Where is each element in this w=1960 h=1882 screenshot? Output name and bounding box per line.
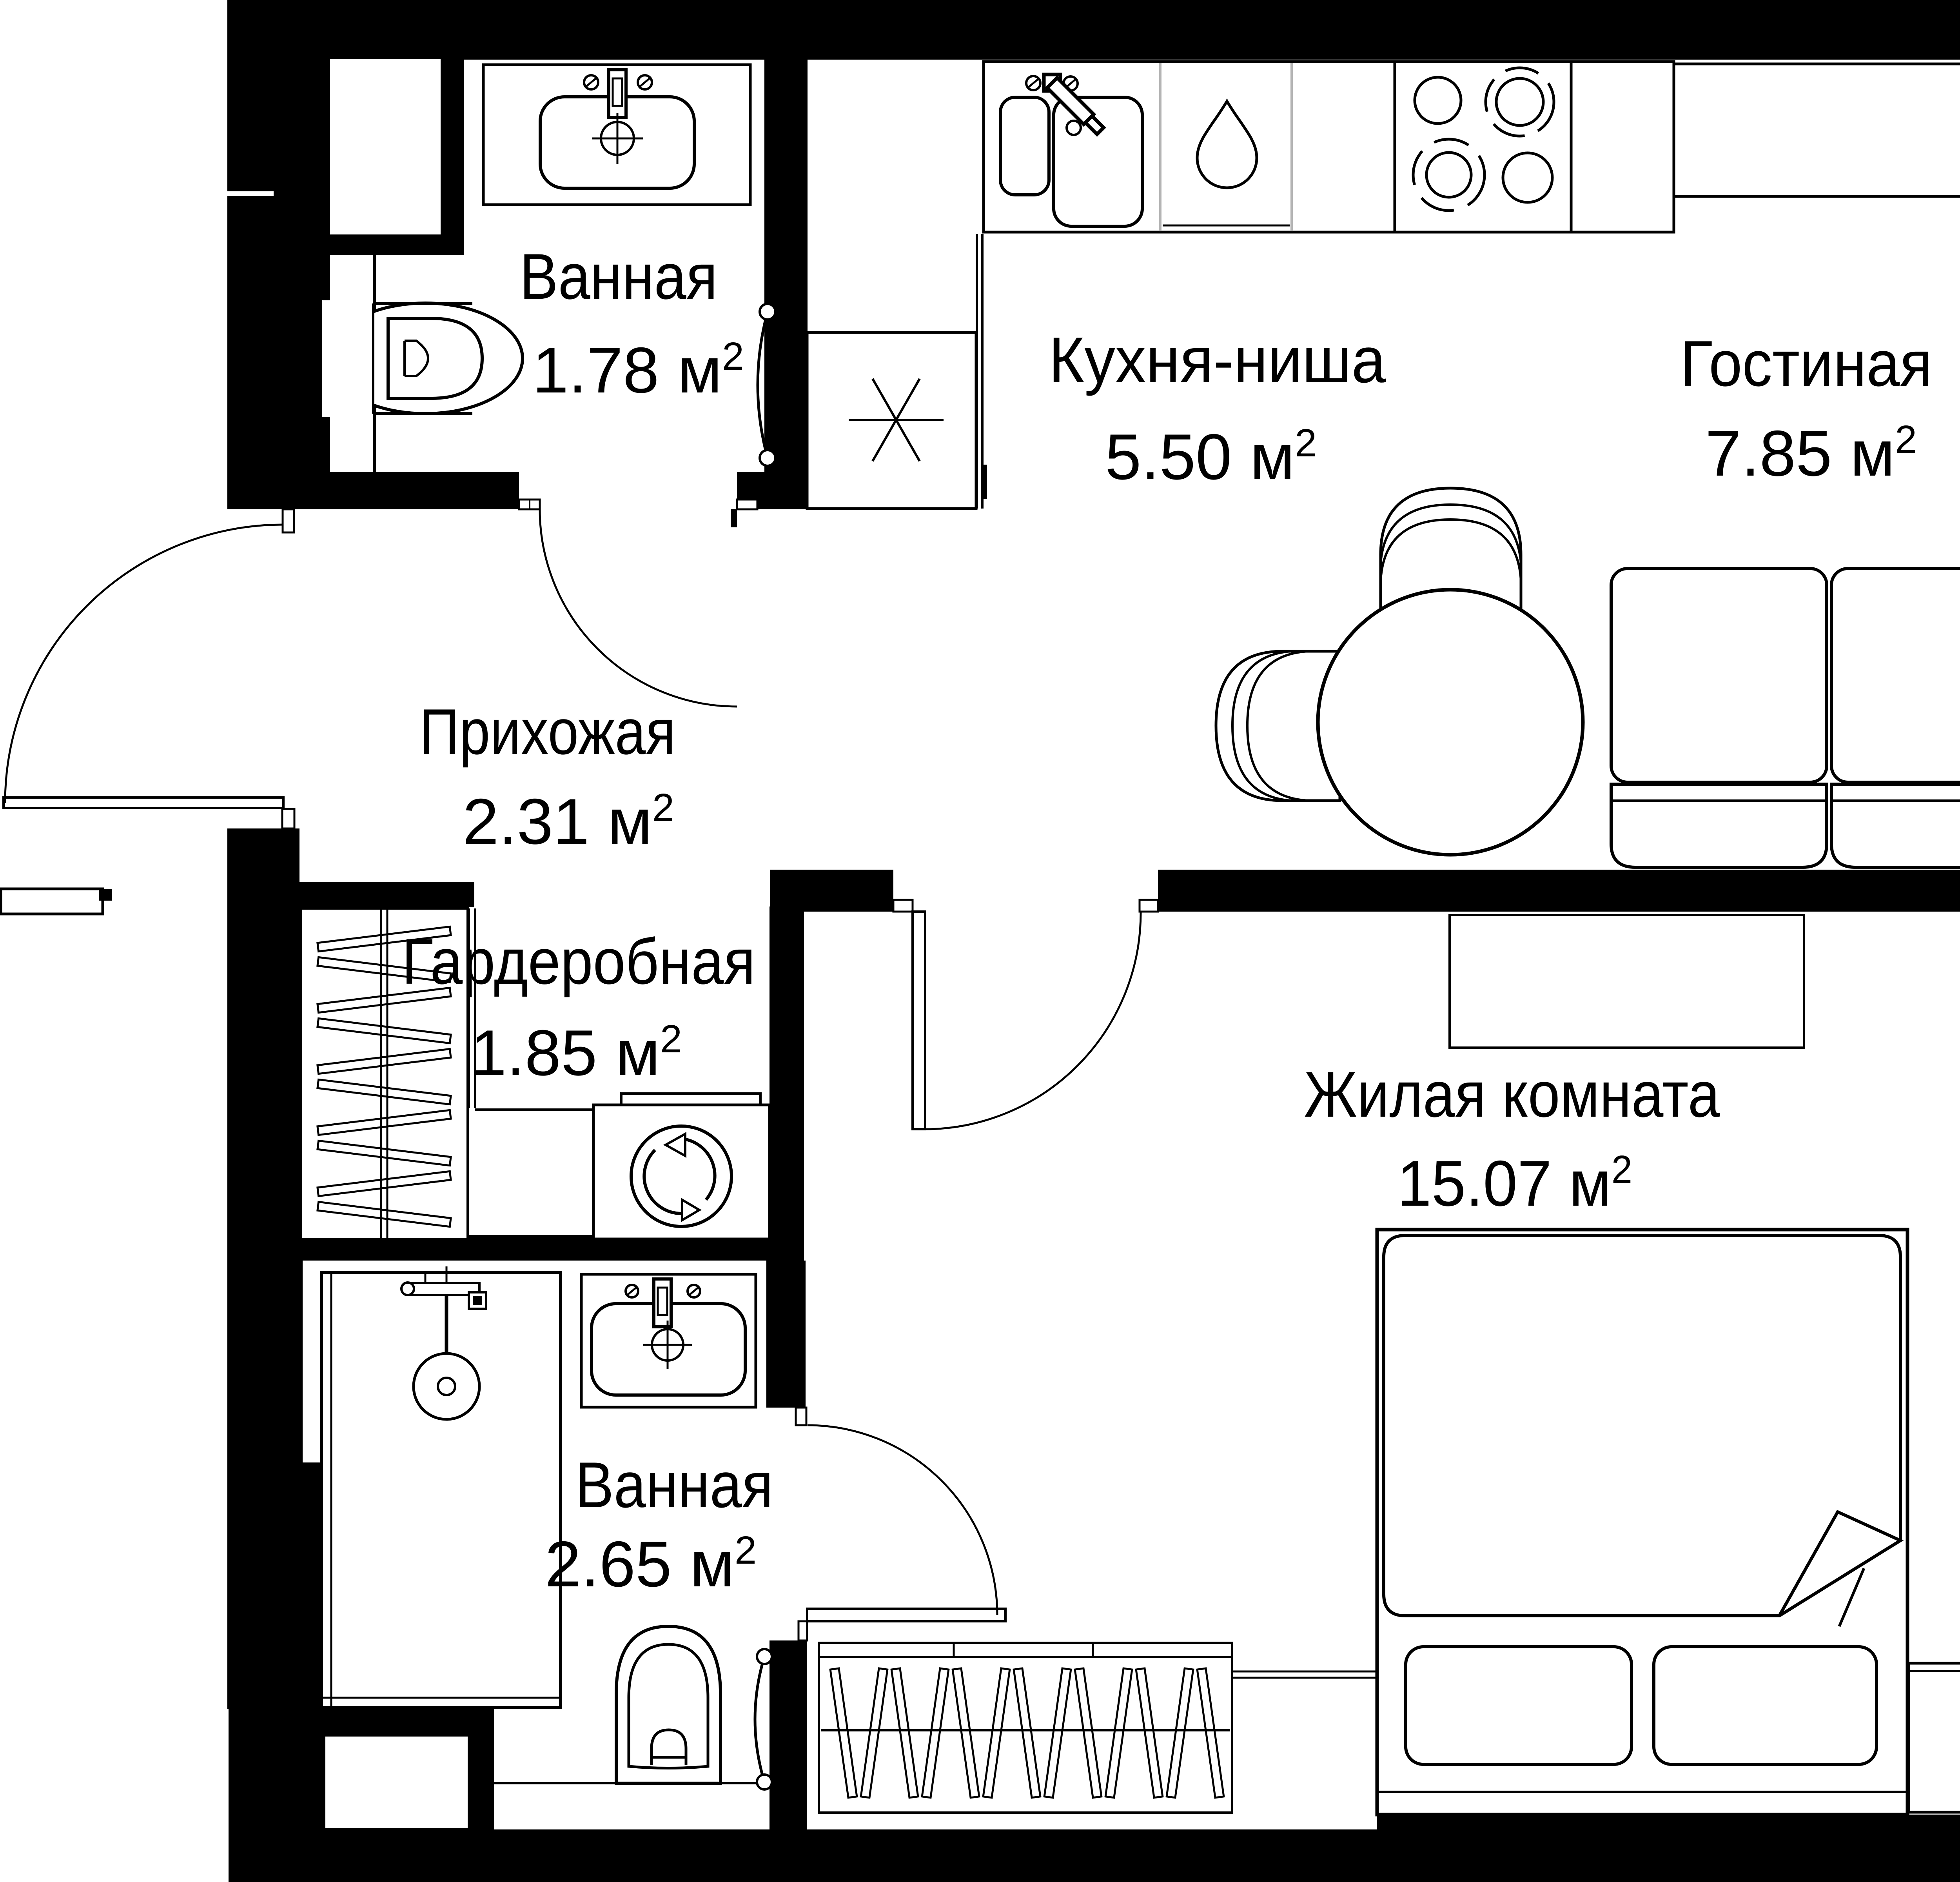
svg-text:2.31 м2: 2.31 м2 bbox=[463, 785, 674, 857]
svg-text:Ванная: Ванная bbox=[575, 1449, 773, 1521]
svg-text:Кухня-ниша: Кухня-ниша bbox=[1049, 324, 1386, 396]
svg-text:1.78 м2: 1.78 м2 bbox=[532, 334, 744, 406]
svg-text:1.85 м2: 1.85 м2 bbox=[470, 1017, 682, 1089]
svg-text:7.85 м2: 7.85 м2 bbox=[1705, 417, 1917, 489]
svg-text:Гардеробная: Гардеробная bbox=[402, 925, 755, 997]
svg-text:5.50 м2: 5.50 м2 bbox=[1105, 421, 1317, 493]
svg-text:Гостиная: Гостиная bbox=[1681, 327, 1933, 400]
svg-text:Прихожая: Прихожая bbox=[420, 696, 676, 768]
svg-text:2.65 м2: 2.65 м2 bbox=[545, 1528, 757, 1600]
svg-text:Ванная: Ванная bbox=[520, 240, 718, 312]
svg-text:15.07 м2: 15.07 м2 bbox=[1397, 1147, 1632, 1219]
svg-text:Жилая комната: Жилая комната bbox=[1304, 1058, 1720, 1130]
